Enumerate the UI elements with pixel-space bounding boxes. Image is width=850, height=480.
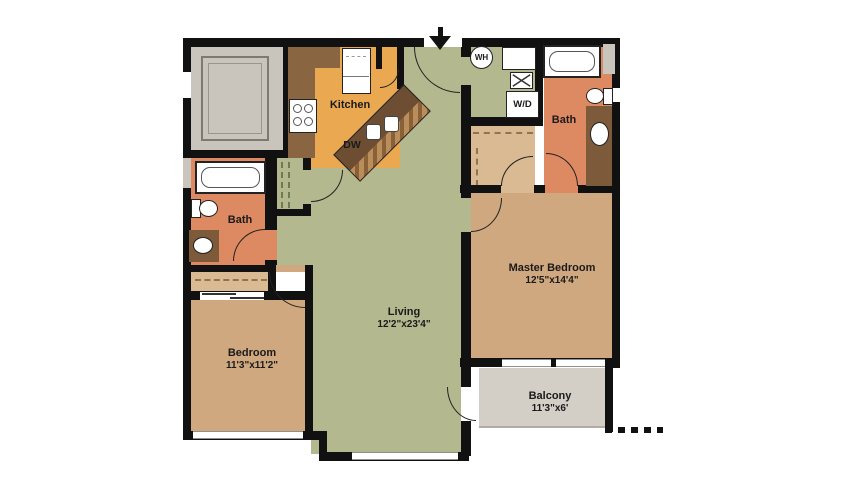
- bathtub-basin: [201, 167, 260, 188]
- window-mullion: [551, 359, 556, 367]
- main-vanity-sink: [193, 237, 213, 254]
- burner-icon: [293, 117, 302, 126]
- kitchen-label-text: Kitchen: [330, 99, 370, 111]
- utility-door-opening: [461, 57, 471, 85]
- dishwasher-label-text: DW: [343, 139, 361, 151]
- storage-inner-line: [208, 63, 262, 134]
- master-bath-door-opening: [545, 185, 578, 193]
- wall: [461, 421, 471, 456]
- bedroom-closet-floor: [191, 272, 270, 292]
- wall: [376, 42, 382, 69]
- utility-sink: [510, 72, 533, 89]
- wall-niche: [603, 44, 615, 74]
- bedroom-label: Bedroom 11'3"x11'2": [187, 347, 317, 372]
- walkin-door-opening: [501, 185, 534, 193]
- living-dims: 12'2"x23'4": [339, 319, 469, 331]
- master-bath-label-text: Bath: [552, 114, 576, 126]
- wall: [461, 85, 471, 198]
- sliding-door-panel: [202, 293, 236, 295]
- refrigerator-door-line: [346, 56, 366, 57]
- island-sink-basin: [384, 116, 399, 132]
- master-bedroom-label: Master Bedroom 12'5"x14'4": [482, 262, 622, 287]
- living-label: Living 12'2"x23'4": [339, 306, 469, 331]
- refrigerator-divider: [343, 76, 369, 77]
- hallway-floor: [277, 216, 311, 267]
- washer-dryer-label: W/D: [513, 99, 531, 110]
- master-bedroom-dims: 12'5"x14'4": [482, 275, 622, 287]
- living-window: [352, 452, 458, 460]
- bedroom-window: [193, 431, 303, 439]
- bedroom-door-opening: [276, 265, 305, 272]
- bath-window: [612, 88, 620, 102]
- wall: [397, 42, 404, 89]
- entry-arrow-icon: [429, 36, 451, 50]
- island-sink-basin: [366, 124, 381, 140]
- storage-opening: [183, 72, 191, 98]
- master-bath-label: Bath: [529, 114, 599, 127]
- living-label-text: Living: [388, 306, 420, 318]
- burner-icon: [304, 117, 313, 126]
- walkin-shelf-line: [476, 148, 478, 186]
- master-toilet-tank: [603, 88, 613, 105]
- balcony-railing: [605, 427, 663, 433]
- utility-shelf: [502, 47, 536, 70]
- refrigerator: [342, 48, 371, 94]
- coat-closet-shelf-line: [281, 162, 283, 208]
- master-door-opening: [461, 198, 471, 232]
- main-bath-label: Bath: [205, 214, 275, 227]
- bedroom-closet-shelf-line: [195, 279, 267, 281]
- wall: [303, 158, 311, 170]
- bathtub-basin: [549, 51, 595, 72]
- balcony-label-text: Balcony: [529, 390, 572, 402]
- main-bathtub: [195, 161, 266, 194]
- main-bath-label-text: Bath: [228, 214, 252, 226]
- bedroom-dims: 11'3"x11'2": [187, 360, 317, 372]
- dishwasher-label: DW: [338, 139, 366, 152]
- water-heater: WH: [470, 46, 493, 69]
- water-heater-label: WH: [475, 53, 488, 63]
- kitchen-counter: [288, 47, 340, 68]
- coat-closet-door-opening: [303, 170, 311, 204]
- wall: [460, 185, 620, 193]
- bath-window-ledge: [183, 158, 191, 188]
- burner-icon: [293, 104, 302, 113]
- balcony-dims: 11'3"x6': [487, 403, 613, 415]
- kitchen-label: Kitchen: [310, 99, 390, 112]
- storage-inner-outline: [201, 56, 269, 141]
- sliding-door-panel: [230, 297, 264, 299]
- balcony-label: Balcony 11'3"x6': [487, 390, 613, 415]
- walkin-shelf-line: [473, 132, 533, 134]
- master-toilet-bowl: [586, 88, 604, 104]
- floor-plan: WH W/D Kitchen DW Bath Bath Living 12'2"…: [0, 0, 850, 480]
- bedroom-label-text: Bedroom: [228, 347, 276, 359]
- coat-closet-shelf-line: [288, 162, 290, 208]
- x-mark-icon: [511, 73, 532, 88]
- master-bathtub: [543, 45, 601, 78]
- wall: [277, 209, 311, 216]
- main-bath-door-opening: [265, 230, 277, 260]
- master-bedroom-label-text: Master Bedroom: [509, 262, 596, 274]
